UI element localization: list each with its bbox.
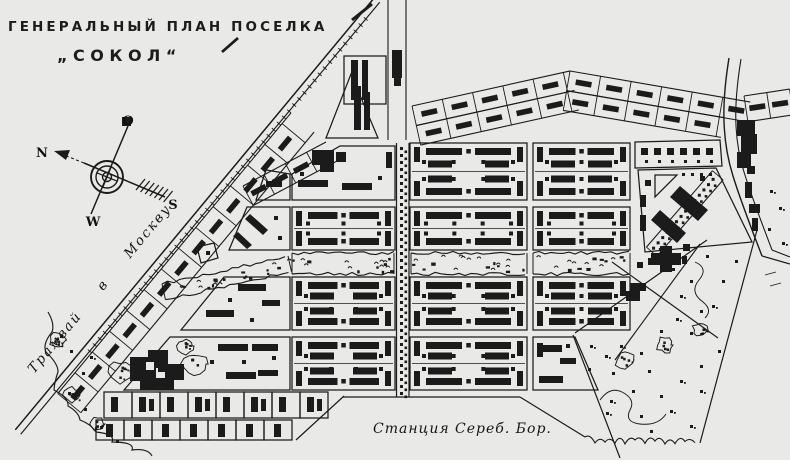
small-house bbox=[691, 173, 694, 176]
boulevard-tree bbox=[405, 263, 408, 266]
tree bbox=[496, 263, 500, 265]
line bbox=[624, 101, 627, 121]
building bbox=[353, 368, 377, 375]
building bbox=[579, 239, 584, 244]
building bbox=[308, 212, 338, 219]
tree bbox=[667, 348, 670, 351]
building bbox=[426, 188, 462, 195]
tree bbox=[486, 266, 490, 268]
lot-building bbox=[174, 260, 189, 276]
building bbox=[517, 281, 523, 296]
small-house bbox=[481, 307, 485, 311]
tree bbox=[189, 348, 191, 350]
tree bbox=[590, 345, 593, 348]
building bbox=[466, 379, 471, 384]
building bbox=[394, 78, 401, 86]
building bbox=[466, 283, 471, 288]
small-house bbox=[545, 307, 549, 311]
boulevard-tree bbox=[400, 238, 403, 241]
lot-building bbox=[546, 101, 563, 110]
boulevard-tree bbox=[405, 333, 408, 336]
building bbox=[475, 282, 511, 289]
bottom-lot-rows bbox=[96, 392, 328, 440]
lot-building bbox=[749, 103, 766, 111]
boulevard-tree bbox=[405, 221, 408, 224]
small-house bbox=[422, 177, 426, 181]
line bbox=[628, 82, 631, 102]
station-label: Станция Сереб. Бор. bbox=[373, 421, 552, 437]
boulevard-tree bbox=[405, 319, 408, 322]
building bbox=[233, 232, 252, 249]
boulevard-tree bbox=[405, 186, 408, 189]
line bbox=[503, 86, 507, 106]
tree bbox=[577, 268, 581, 270]
small-house bbox=[654, 148, 661, 155]
small-house bbox=[545, 160, 549, 164]
building bbox=[386, 152, 392, 168]
building bbox=[579, 319, 584, 324]
line bbox=[655, 106, 658, 126]
small-house bbox=[422, 367, 426, 371]
tree bbox=[123, 378, 125, 380]
boulevard-tree bbox=[400, 336, 403, 339]
small-house bbox=[580, 307, 584, 311]
tree bbox=[690, 332, 693, 335]
tree bbox=[624, 347, 626, 349]
building bbox=[588, 293, 612, 300]
small-house bbox=[645, 160, 648, 163]
line bbox=[594, 96, 597, 116]
building bbox=[308, 282, 338, 289]
courtyard bbox=[146, 362, 154, 370]
alley-tree bbox=[707, 183, 710, 186]
tree bbox=[82, 372, 85, 375]
small-house bbox=[545, 294, 549, 298]
tree bbox=[192, 359, 195, 362]
tree bbox=[626, 364, 629, 367]
tree bbox=[786, 244, 788, 246]
lot-building bbox=[455, 121, 472, 130]
small-house bbox=[700, 173, 703, 176]
tree bbox=[783, 209, 785, 211]
building bbox=[466, 213, 471, 218]
small-house bbox=[306, 222, 310, 226]
lot-building bbox=[122, 322, 137, 338]
boulevard-tree bbox=[405, 326, 408, 329]
small-house bbox=[379, 294, 383, 298]
line bbox=[58, 113, 291, 394]
small-house bbox=[452, 294, 456, 298]
tree bbox=[632, 361, 634, 363]
building bbox=[537, 181, 543, 196]
tree bbox=[121, 367, 124, 370]
lot-building bbox=[772, 100, 789, 108]
lot-building bbox=[602, 104, 619, 112]
tree bbox=[100, 426, 103, 429]
building bbox=[517, 341, 523, 356]
building bbox=[341, 319, 346, 324]
building bbox=[300, 172, 304, 176]
line bbox=[412, 106, 416, 126]
building bbox=[392, 50, 402, 78]
boulevard-tree bbox=[400, 343, 403, 346]
building bbox=[310, 293, 334, 300]
boulevard-tree bbox=[405, 382, 408, 385]
lot-building bbox=[512, 88, 529, 97]
building bbox=[588, 282, 615, 289]
small-house bbox=[481, 177, 485, 181]
tree bbox=[680, 320, 682, 322]
tree bbox=[304, 264, 308, 266]
line bbox=[288, 256, 291, 272]
tree bbox=[491, 268, 495, 270]
tree bbox=[680, 295, 683, 298]
building bbox=[341, 379, 346, 384]
building bbox=[466, 343, 471, 348]
building bbox=[485, 293, 509, 300]
tree bbox=[467, 258, 471, 260]
small-house bbox=[511, 367, 515, 371]
alley-tree bbox=[686, 216, 689, 219]
compass-letter-south: S bbox=[168, 198, 177, 213]
tree bbox=[623, 358, 626, 361]
building bbox=[350, 342, 380, 349]
tree bbox=[266, 269, 268, 271]
small-house bbox=[671, 160, 674, 163]
boulevard-tree bbox=[405, 214, 408, 217]
alley-tree bbox=[675, 220, 678, 223]
building bbox=[588, 308, 612, 315]
building bbox=[549, 318, 576, 325]
boulevard-tree bbox=[405, 340, 408, 343]
alley-tree bbox=[712, 178, 715, 181]
building bbox=[549, 238, 576, 245]
path bbox=[600, 390, 666, 424]
lot-building bbox=[694, 120, 711, 128]
line bbox=[700, 230, 757, 443]
tree bbox=[459, 255, 463, 257]
small-house bbox=[511, 294, 515, 298]
boulevard-tree bbox=[405, 347, 408, 350]
tree bbox=[190, 345, 192, 347]
building bbox=[308, 238, 338, 245]
boulevard-tree bbox=[400, 231, 403, 234]
tree bbox=[684, 382, 686, 384]
boulevard-tree bbox=[400, 161, 403, 164]
building bbox=[549, 148, 576, 155]
building bbox=[426, 238, 462, 245]
boulevard-tree bbox=[400, 385, 403, 388]
building bbox=[308, 378, 338, 385]
tree bbox=[592, 257, 596, 260]
building bbox=[747, 166, 755, 174]
greenery-edge bbox=[533, 272, 629, 275]
boulevard-tree bbox=[400, 322, 403, 325]
boulevard-tree bbox=[405, 277, 408, 280]
tree bbox=[207, 287, 210, 290]
building bbox=[537, 147, 543, 162]
tree bbox=[605, 355, 608, 358]
tree bbox=[127, 370, 129, 372]
small-house bbox=[481, 222, 485, 226]
lot-building bbox=[486, 114, 503, 123]
line bbox=[473, 93, 477, 113]
tree bbox=[663, 345, 666, 348]
building bbox=[566, 344, 570, 348]
small-house bbox=[377, 232, 381, 236]
small-house bbox=[481, 367, 485, 371]
tree bbox=[774, 192, 776, 194]
boulevard-tree bbox=[405, 298, 408, 301]
boulevard-tree bbox=[405, 165, 408, 168]
building bbox=[246, 424, 253, 437]
tree bbox=[620, 345, 623, 348]
small-house bbox=[379, 354, 383, 358]
building bbox=[296, 281, 302, 296]
building bbox=[350, 318, 380, 325]
tree bbox=[506, 259, 510, 261]
building bbox=[385, 311, 391, 326]
greenery-edge bbox=[292, 251, 394, 254]
boulevard-tree bbox=[405, 354, 408, 357]
small-house bbox=[580, 160, 584, 164]
tree bbox=[382, 271, 384, 274]
building bbox=[266, 181, 282, 187]
tree bbox=[493, 262, 495, 265]
tree bbox=[700, 390, 703, 393]
path bbox=[695, 262, 709, 318]
alley-tree bbox=[652, 247, 655, 250]
small-house bbox=[511, 354, 515, 358]
building bbox=[428, 293, 452, 300]
tree bbox=[199, 286, 203, 288]
boulevard-tree bbox=[400, 203, 403, 206]
building bbox=[428, 161, 452, 168]
building bbox=[279, 397, 286, 412]
tree bbox=[423, 269, 426, 271]
boulevard-tree bbox=[405, 179, 408, 182]
tree bbox=[386, 266, 390, 268]
park-edge bbox=[585, 436, 695, 444]
tree bbox=[694, 427, 696, 429]
tree bbox=[702, 332, 705, 335]
tree bbox=[186, 343, 189, 346]
tree bbox=[454, 268, 458, 270]
line bbox=[563, 91, 566, 111]
small-house bbox=[614, 160, 618, 164]
small-house bbox=[304, 354, 308, 358]
boulevard-tree bbox=[400, 371, 403, 374]
building bbox=[475, 212, 511, 219]
tree bbox=[620, 256, 624, 258]
building bbox=[588, 212, 615, 219]
building bbox=[336, 152, 346, 162]
building bbox=[426, 378, 462, 385]
compass-arrowhead bbox=[54, 150, 70, 160]
building bbox=[426, 148, 462, 155]
boulevard-tree bbox=[400, 175, 403, 178]
building bbox=[426, 318, 462, 325]
greenery-edge bbox=[533, 251, 629, 254]
building bbox=[274, 424, 281, 437]
small-house bbox=[422, 160, 426, 164]
building bbox=[298, 180, 328, 187]
tree bbox=[632, 390, 635, 393]
tree bbox=[68, 392, 71, 395]
boulevard-tree bbox=[400, 294, 403, 297]
boulevard-tree bbox=[400, 392, 403, 395]
lot-building bbox=[425, 127, 442, 136]
tree bbox=[712, 305, 715, 308]
alley-tree bbox=[714, 184, 717, 187]
lot-building bbox=[421, 108, 438, 117]
lot-building bbox=[140, 302, 155, 318]
building bbox=[485, 176, 509, 183]
tree bbox=[611, 258, 615, 260]
small-house bbox=[580, 294, 584, 298]
boulevard-tree bbox=[400, 378, 403, 381]
tree bbox=[674, 412, 676, 414]
building bbox=[226, 372, 256, 379]
boulevard-tree bbox=[400, 245, 403, 248]
tree bbox=[628, 359, 631, 362]
building bbox=[549, 212, 576, 219]
tree bbox=[376, 266, 378, 268]
tree bbox=[676, 318, 679, 321]
line bbox=[685, 112, 688, 132]
lot-building bbox=[278, 136, 293, 152]
boulevard-tree bbox=[405, 242, 408, 245]
boulevard-tree bbox=[400, 217, 403, 220]
tree-patch bbox=[181, 355, 209, 375]
small-house bbox=[304, 294, 308, 298]
building bbox=[579, 213, 584, 218]
tree bbox=[660, 395, 663, 398]
boulevard-tree bbox=[405, 172, 408, 175]
boulevard-tree bbox=[405, 312, 408, 315]
building bbox=[537, 281, 543, 296]
building bbox=[238, 284, 266, 291]
boulevard-tree bbox=[405, 256, 408, 259]
alley-tree bbox=[705, 195, 708, 198]
tree bbox=[768, 228, 771, 231]
building bbox=[190, 424, 197, 437]
building bbox=[428, 308, 452, 315]
building bbox=[620, 147, 626, 162]
building bbox=[251, 397, 258, 412]
building bbox=[296, 231, 302, 246]
small-house bbox=[641, 148, 648, 155]
small-house bbox=[452, 367, 456, 371]
boulevard-tree bbox=[405, 284, 408, 287]
boulevard-tree bbox=[405, 368, 408, 371]
small-house bbox=[304, 367, 308, 371]
building bbox=[414, 311, 420, 326]
building bbox=[341, 343, 346, 348]
small-house bbox=[680, 148, 687, 155]
lot-building bbox=[481, 95, 498, 104]
building bbox=[350, 238, 380, 245]
building bbox=[414, 371, 420, 386]
boulevard-tree bbox=[405, 291, 408, 294]
line bbox=[537, 99, 541, 119]
small-house bbox=[706, 148, 713, 155]
tree bbox=[272, 263, 276, 265]
boulevard-tree bbox=[400, 189, 403, 192]
boulevard-tree bbox=[400, 364, 403, 367]
tree bbox=[249, 277, 252, 280]
tree bbox=[684, 297, 686, 299]
building bbox=[560, 358, 576, 364]
small-house bbox=[709, 173, 712, 176]
building bbox=[308, 342, 338, 349]
tree bbox=[707, 331, 709, 333]
alley-tree bbox=[661, 236, 664, 239]
building bbox=[205, 399, 210, 411]
building bbox=[551, 308, 575, 315]
boulevard-tree bbox=[400, 210, 403, 213]
lot-building bbox=[451, 101, 468, 110]
small-house bbox=[304, 307, 308, 311]
tree bbox=[94, 358, 96, 360]
building bbox=[466, 239, 471, 244]
tree bbox=[267, 273, 269, 275]
building bbox=[278, 236, 282, 240]
tree bbox=[700, 310, 703, 313]
building bbox=[385, 231, 391, 246]
tree bbox=[587, 269, 590, 271]
building bbox=[588, 161, 612, 168]
alley-tree bbox=[709, 190, 712, 193]
building bbox=[517, 371, 523, 386]
building bbox=[378, 176, 382, 180]
line bbox=[658, 87, 661, 107]
building bbox=[485, 368, 509, 375]
courtyard bbox=[158, 372, 165, 378]
boulevard-tree bbox=[400, 280, 403, 283]
building bbox=[737, 120, 755, 136]
boulevard-tree bbox=[405, 249, 408, 252]
tree bbox=[390, 270, 394, 273]
small-house bbox=[481, 294, 485, 298]
building bbox=[588, 148, 615, 155]
building bbox=[475, 238, 511, 245]
line bbox=[533, 79, 537, 99]
building bbox=[310, 353, 334, 360]
tree bbox=[612, 372, 615, 375]
small-house bbox=[422, 354, 426, 358]
building bbox=[640, 215, 646, 231]
building bbox=[551, 176, 575, 183]
small-house bbox=[424, 232, 428, 236]
map-title-line2: „СОКОЛ“ bbox=[57, 46, 182, 65]
tree bbox=[380, 265, 384, 267]
lot-building bbox=[226, 198, 241, 214]
tree bbox=[497, 265, 500, 267]
building bbox=[428, 368, 452, 375]
building bbox=[218, 424, 225, 437]
tree bbox=[554, 266, 558, 268]
alley-tree bbox=[700, 200, 703, 203]
tree bbox=[670, 410, 673, 413]
tree bbox=[588, 368, 591, 371]
building bbox=[517, 181, 523, 196]
line bbox=[767, 93, 771, 119]
small-house bbox=[452, 177, 456, 181]
tree bbox=[716, 307, 718, 309]
building bbox=[549, 188, 576, 195]
building bbox=[683, 244, 690, 251]
